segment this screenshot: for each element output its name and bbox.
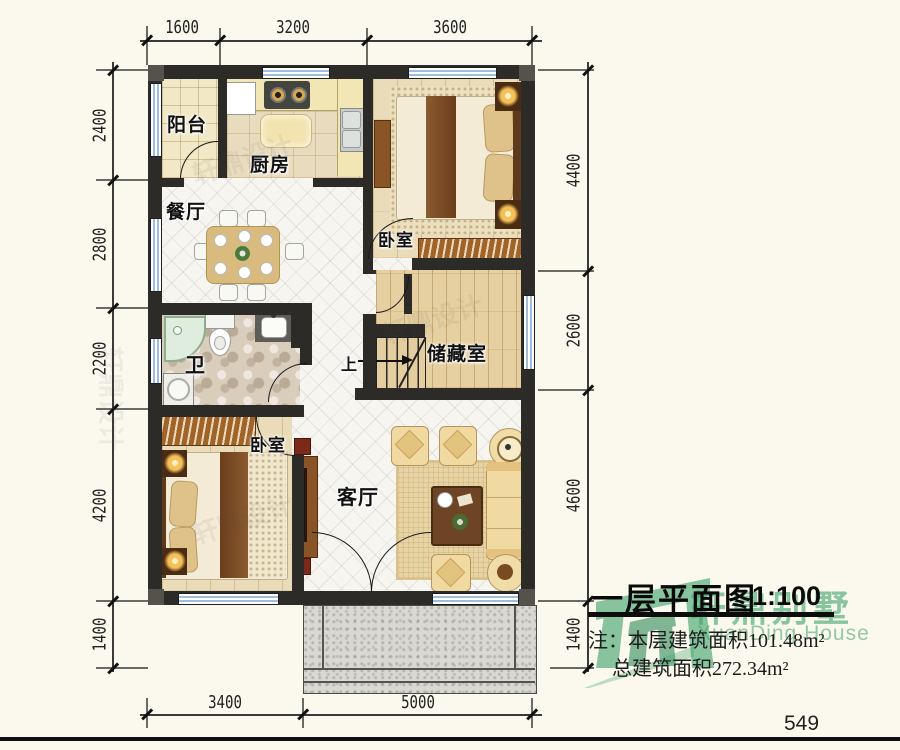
dim-top-2: 3200 (270, 17, 317, 38)
dim-ext (96, 69, 148, 71)
note-line-1: 注：本层建筑面积101.48m² (588, 624, 825, 653)
wall-corner (519, 589, 535, 605)
plate (260, 234, 273, 247)
watermark-text: 轩鼎设计 (94, 346, 131, 450)
burner (291, 87, 307, 103)
sink-basin (342, 130, 361, 148)
dim-bottom-2: 5000 (395, 692, 442, 713)
sofa-armrest (486, 462, 524, 471)
lamp (497, 85, 519, 107)
dim-left-1: 2400 (90, 102, 111, 149)
sink-basin (342, 111, 361, 129)
room-label-stairs-up: 上 (341, 351, 358, 375)
dim-ext (96, 667, 148, 669)
dim-line-top (140, 40, 542, 42)
lamp (164, 550, 186, 572)
window (150, 218, 162, 292)
plate (238, 266, 251, 279)
wall (300, 303, 312, 365)
side-table-item (497, 564, 513, 580)
dim-right-1: 4400 (564, 147, 585, 194)
lamp (497, 203, 519, 225)
dim-line-bottom (140, 714, 542, 716)
dim-right-4: 1400 (564, 611, 585, 658)
plate (214, 234, 227, 247)
plan-scale: 1:100 (752, 581, 821, 612)
dim-top-3: 3600 (427, 17, 474, 38)
dining-chair (219, 210, 238, 227)
dim-ext (96, 600, 148, 602)
wall (363, 258, 370, 270)
room-label-balcony: 阳台 (167, 110, 207, 137)
table-flowers (235, 246, 250, 261)
washer-drum (167, 378, 190, 401)
wall (162, 178, 184, 187)
window (262, 67, 330, 79)
patio-border-line (322, 605, 324, 668)
dim-ext (146, 26, 148, 65)
wall (148, 303, 312, 315)
floor-plan-page: 阳台 厨房 餐厅 卧室 卫 储藏室 上 客厅 卧室 1600 3200 3600… (0, 0, 900, 750)
toilet-seat (214, 336, 226, 350)
lamp (164, 452, 186, 474)
wash-basin (261, 317, 287, 338)
page-number: 549 (784, 712, 819, 736)
wall-corner (148, 589, 164, 605)
wall (363, 270, 376, 274)
room-label-dining: 餐厅 (166, 197, 206, 224)
window (523, 295, 535, 370)
plate (238, 230, 251, 243)
burner (270, 87, 286, 103)
kitchen-sink (224, 82, 256, 115)
patio-step-line (303, 668, 535, 670)
dining-chair (285, 243, 304, 260)
dining-chair (247, 284, 266, 301)
toilet-tank (205, 314, 235, 329)
wall (355, 388, 535, 400)
speaker (294, 438, 311, 455)
wall (292, 455, 304, 591)
plate (214, 262, 227, 275)
dim-right-3: 4600 (564, 472, 585, 519)
wardrobe (150, 414, 256, 446)
dim-right-2: 2600 (564, 307, 585, 354)
room-label-storage: 储藏室 (427, 339, 487, 366)
pillow (482, 153, 515, 203)
wall-corner (148, 65, 164, 81)
dim-left-5: 1400 (90, 611, 111, 658)
patio-border-line (514, 605, 516, 668)
window (408, 67, 497, 79)
wall (412, 258, 535, 270)
plate (260, 262, 273, 275)
dim-left-2: 2800 (90, 221, 111, 268)
room-label-bedroom-top: 卧室 (378, 226, 414, 251)
dim-ext (96, 179, 148, 181)
footer-rule (0, 737, 900, 741)
tub-drain (173, 326, 182, 335)
dim-left-4: 4200 (90, 482, 111, 529)
room-label-bathroom: 卫 (185, 349, 206, 378)
dresser (374, 120, 391, 188)
sofa (486, 462, 526, 560)
dim-top-1: 1600 (159, 17, 206, 38)
window (178, 593, 279, 605)
window (150, 83, 162, 157)
window (432, 593, 519, 605)
wall (148, 405, 304, 417)
dim-ext (366, 28, 368, 65)
coffee-table-plant (452, 514, 468, 530)
dim-line-right (587, 62, 589, 672)
coffee-table-plate (437, 492, 453, 508)
bed-blanket (426, 96, 456, 218)
room-label-bedroom-bottom: 卧室 (250, 431, 286, 456)
dim-ext (219, 28, 221, 65)
dim-ext (531, 26, 533, 65)
dining-chair (219, 284, 238, 301)
stairs-arrow-head (402, 355, 413, 365)
patio-step-line (303, 681, 535, 683)
title-underline (588, 612, 834, 617)
side-table-item (505, 444, 511, 450)
window (150, 338, 162, 384)
room-label-living: 客厅 (337, 481, 379, 510)
note-line-2: 总建筑面积272.34m² (612, 652, 789, 681)
dim-ext (96, 307, 148, 309)
wall (292, 405, 304, 417)
dim-bottom-1: 3400 (202, 692, 249, 713)
wall-corner (519, 65, 535, 81)
dining-chair (247, 210, 266, 227)
